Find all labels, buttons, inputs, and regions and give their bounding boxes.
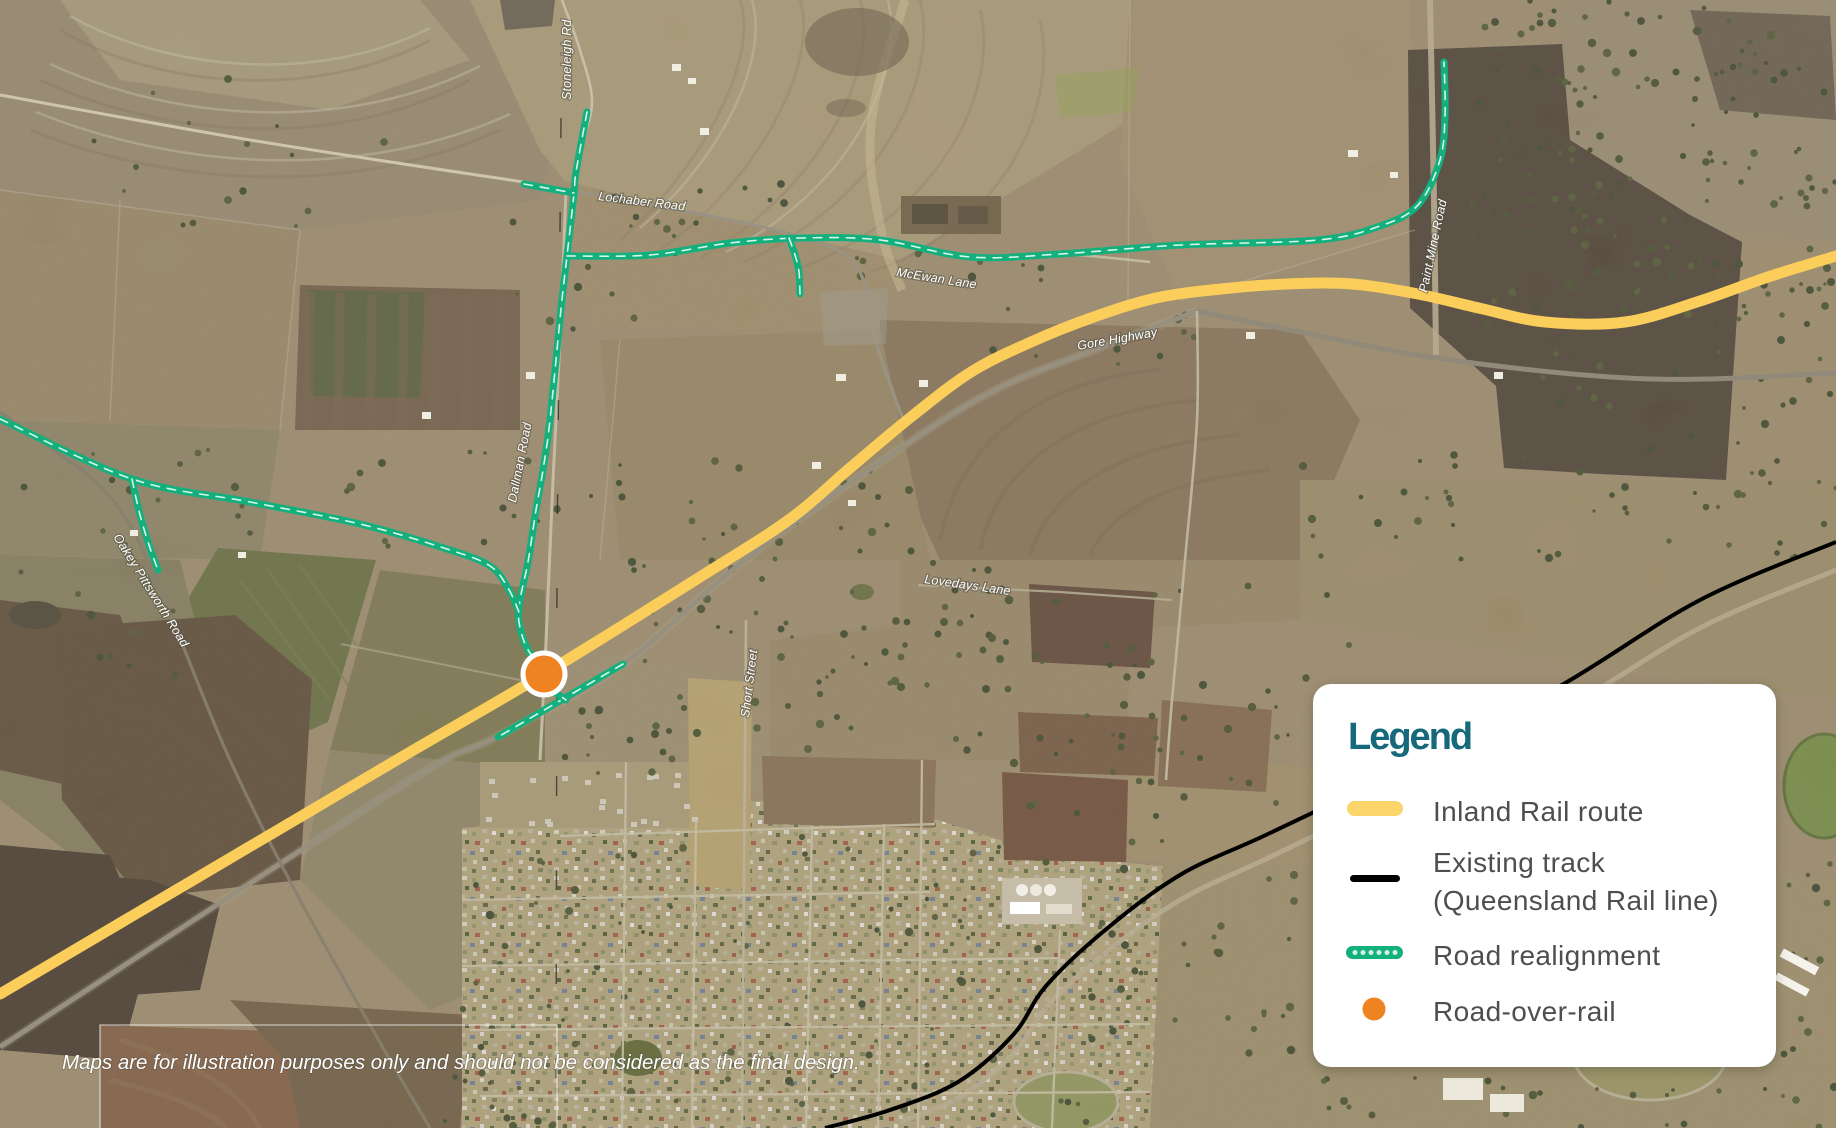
svg-text:Maps are for illustration purp: Maps are for illustration purposes only … — [62, 1051, 860, 1074]
svg-text:Stoneleigh Rd: Stoneleigh Rd — [560, 19, 574, 100]
